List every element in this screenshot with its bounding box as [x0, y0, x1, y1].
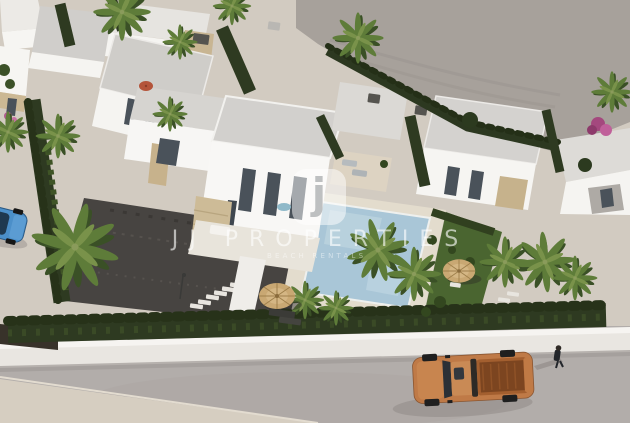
aerial-render-image: j JJ PROPERTIES BEACH RENTALS: [0, 0, 630, 423]
palm-tree: [332, 12, 383, 63]
palm-tree: [387, 247, 441, 301]
villa-far-right: [556, 128, 630, 215]
palm-tree: [162, 24, 197, 59]
render-scene: [0, 0, 630, 423]
palm-tree: [553, 256, 598, 301]
palm-tree: [318, 290, 353, 325]
terracotta-umbrella: [139, 81, 153, 91]
palm-tree: [152, 96, 187, 131]
palm-tree: [36, 114, 81, 159]
